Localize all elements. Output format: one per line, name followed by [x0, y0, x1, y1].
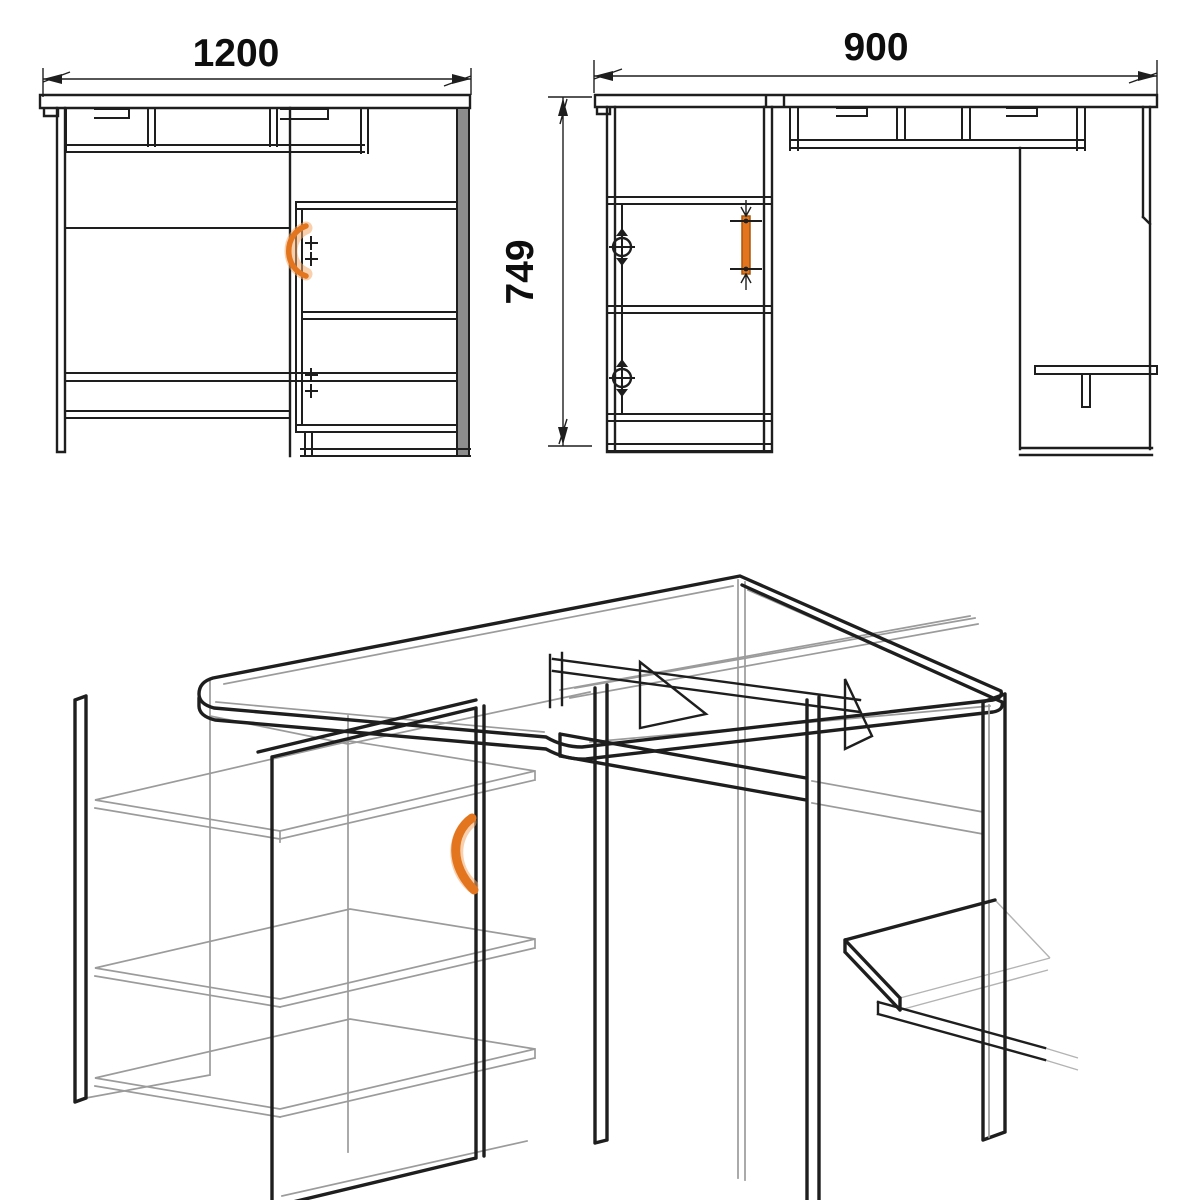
isometric-view: [75, 576, 1078, 1200]
dimension-height: 749: [499, 97, 592, 446]
front-side-panel: [457, 108, 469, 456]
iso-keyboard-tray: [550, 653, 872, 800]
hinge-icon: [610, 359, 634, 397]
dimension-width: 1200: [43, 32, 471, 97]
front-view: 1200: [40, 32, 471, 456]
front-keyboard-tray: [66, 108, 368, 153]
front-carcass: [57, 108, 469, 456]
side-right-panel: [1020, 107, 1157, 455]
iso-pedestal: [75, 685, 607, 1200]
iso-desktop: [199, 576, 1002, 759]
dimension-height-label: 749: [499, 239, 542, 304]
hinge-icon: [610, 228, 634, 266]
drawing-svg: 1200 900: [0, 0, 1200, 1200]
technical-drawing: 1200 900: [0, 0, 1200, 1200]
dimension-depth: 900: [594, 26, 1157, 94]
dimension-depth-label: 900: [843, 26, 908, 69]
side-pedestal: [607, 107, 772, 452]
dimension-width-label: 1200: [193, 32, 280, 75]
iso-lower-shelf: [845, 900, 1045, 1060]
iso-middle-panel: [807, 697, 819, 1200]
side-desktop: [595, 95, 1157, 114]
iso-right-panel: [983, 694, 1005, 1140]
door-handle-side: [731, 200, 761, 290]
side-keyboard-tray: [790, 107, 1085, 150]
front-desktop: [40, 95, 470, 116]
side-view: 900 749: [499, 26, 1157, 455]
front-cabinet-door: [289, 202, 470, 456]
